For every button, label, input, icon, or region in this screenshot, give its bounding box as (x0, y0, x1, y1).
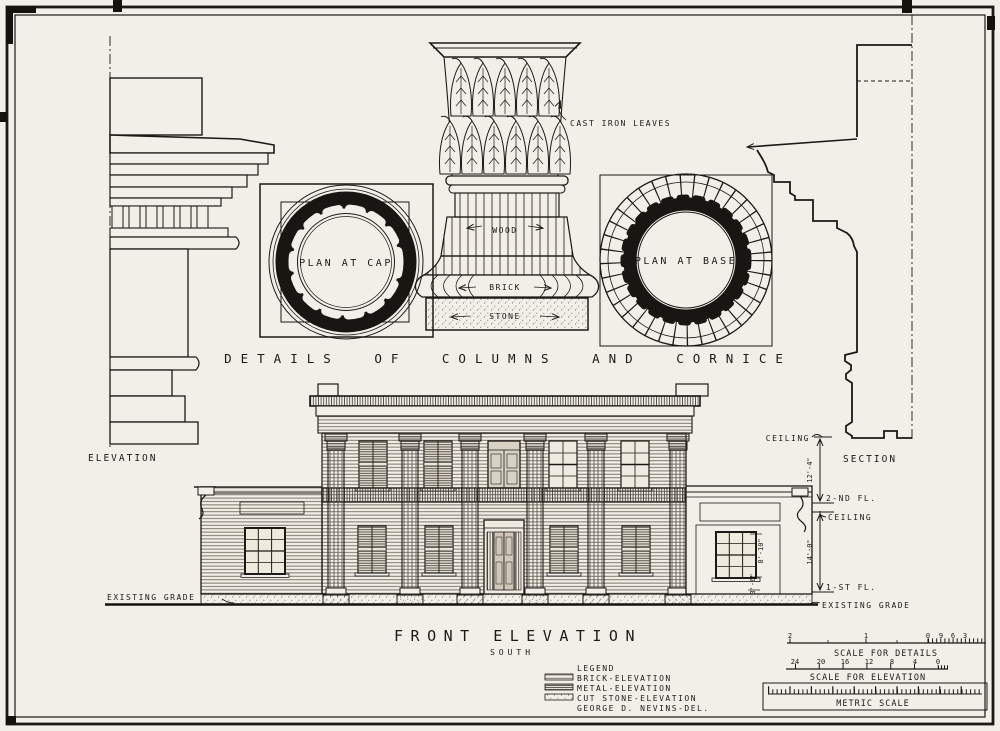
first-floor-shuttered-window (619, 526, 653, 576)
scale-for-elevation-label: SCALE FOR ELEVATION (810, 673, 926, 683)
front-elevation-subtitle: SOUTH (490, 648, 534, 657)
legend-swatch-brick (545, 674, 573, 680)
metric-scale: METRIC SCALE (763, 683, 987, 710)
legend-title: LEGEND (577, 664, 615, 673)
elevation-detail-label: ELEVATION (88, 453, 157, 464)
scale-tick-label: 16 (841, 658, 849, 666)
corner-console (198, 487, 214, 495)
registration-mark (113, 0, 122, 12)
legend-swatch-metal (545, 684, 573, 690)
first-floor-label: 1-ST FL. (826, 583, 877, 592)
second-floor-door (488, 441, 520, 488)
registration-mark (6, 716, 16, 725)
plan-at-cap-label: PLAN AT CAP (299, 258, 393, 269)
plan-at-base: PLAN AT BASE (600, 174, 772, 346)
frieze-band (318, 416, 692, 433)
second-floor-sash-window (546, 441, 580, 491)
section-detail-label: SECTION (843, 454, 897, 465)
second-floor-shuttered-window (356, 441, 390, 491)
front-elevation-title: FRONT ELEVATION (394, 627, 642, 645)
window-sill-dim: 3'-6" (749, 573, 757, 594)
legend-item-stone: CUT STONE-ELEVATION (577, 694, 697, 703)
window-height-dim: 8'-10" (757, 538, 765, 563)
existing-grade-right-label: EXISTING GRADE (822, 601, 910, 610)
cornice-section-detail: SECTION (748, 15, 912, 465)
scale-tick-label: 20 (817, 658, 825, 666)
scale-bars: 2 1 0 9 6 3 SCALE FOR DETAILS 24 20 16 1… (763, 632, 987, 710)
sheet-svg: ELEVATION CAST IRON LEAVES WOOD BRICK ST… (0, 0, 1000, 731)
legend-item-metal: METAL-ELEVATION (577, 684, 672, 693)
cast-iron-leaves-label: CAST IRON LEAVES (570, 119, 671, 128)
registration-mark (6, 6, 13, 44)
first-floor-shuttered-window (547, 526, 581, 576)
drawing-sheet: ELEVATION CAST IRON LEAVES WOOD BRICK ST… (0, 0, 1000, 731)
scale-for-details: 2 1 0 9 6 3 SCALE FOR DETAILS (787, 632, 986, 659)
scale-for-elevation: 24 20 16 12 8 4 0 SCALE FOR ELEVATION (786, 658, 948, 683)
dim-14-0: 14'-0" (806, 539, 814, 564)
legend-credit: GEORGE D. NEVINS-DEL. (577, 704, 710, 713)
plan-at-base-label: PLAN AT BASE (635, 256, 737, 267)
stone-label: STONE (489, 312, 521, 321)
chimney (676, 384, 708, 396)
front-elevation-drawing: 8'-10" 3'-6" EXISTING GRADE (105, 384, 818, 605)
porch-balustrade (322, 488, 686, 502)
left-wing-window (241, 528, 289, 577)
metric-scale-label: METRIC SCALE (836, 699, 909, 709)
cornice-elevation-detail: ELEVATION (88, 36, 274, 464)
first-floor-shuttered-window (355, 526, 389, 576)
first-floor-shuttered-window (422, 526, 456, 576)
legend-item-brick: BRICK-ELEVATION (577, 674, 672, 683)
scale-for-details-label: SCALE FOR DETAILS (834, 649, 938, 659)
legend: LEGEND BRICK-ELEVATION METAL-ELEVATION C… (545, 664, 710, 713)
brick-label: BRICK (489, 283, 521, 292)
ceiling-upper-label: CEILING (766, 434, 810, 443)
legend-swatch-stone (545, 694, 573, 700)
dim-12-4: 12'-4" (806, 457, 814, 482)
existing-grade-left-label: EXISTING GRADE (107, 593, 195, 602)
right-wing: 8'-10" 3'-6" (686, 486, 812, 595)
second-floor-label: 2-ND FL. (826, 494, 877, 503)
cornice-band (310, 396, 700, 406)
registration-mark (902, 0, 912, 13)
left-wing (194, 487, 322, 594)
corner-console (792, 488, 808, 496)
chimney (318, 384, 338, 396)
registration-mark (0, 112, 7, 122)
second-floor-sash-window (618, 441, 652, 491)
details-title: DETAILS OF COLUMNS AND CORNICE (224, 351, 792, 366)
first-floor-entrance-door (484, 520, 524, 594)
wood-label: WOOD (492, 226, 517, 235)
second-floor-shuttered-window (421, 441, 455, 491)
ceiling-lower-label: CEILING (828, 513, 872, 522)
scale-tick-label: 12 (865, 658, 873, 666)
plan-at-cap: PLAN AT CAP (260, 184, 433, 339)
cornice-fascia (316, 406, 694, 416)
foundation-band (201, 594, 812, 604)
registration-mark (987, 16, 995, 30)
